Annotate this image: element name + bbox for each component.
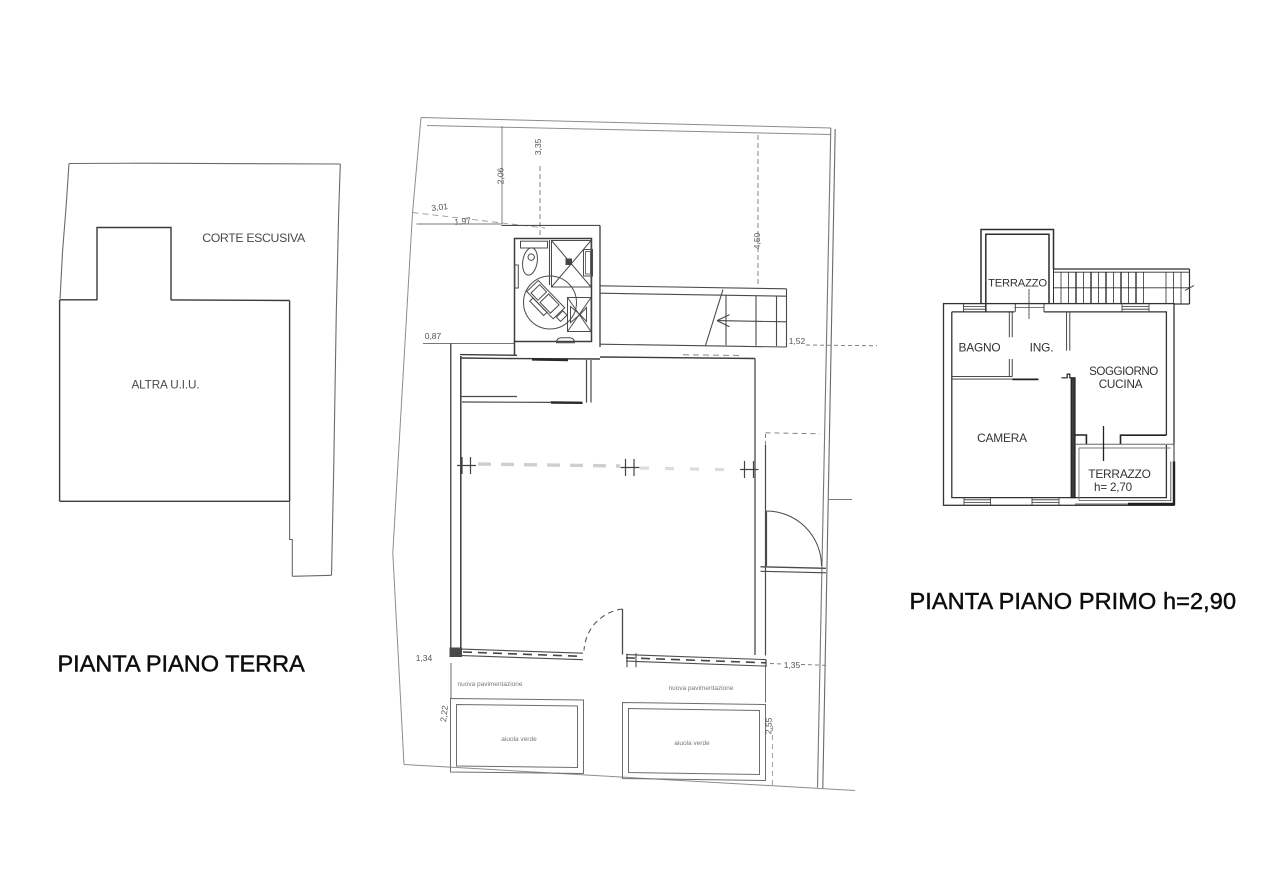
svg-text:3,01: 3,01 xyxy=(431,201,449,213)
svg-text:PIANTA PIANO PRIMO h=2,90: PIANTA PIANO PRIMO h=2,90 xyxy=(910,588,1237,614)
svg-text:ING.: ING. xyxy=(1030,341,1054,355)
svg-text:CUCINA: CUCINA xyxy=(1099,378,1143,391)
svg-text:BAGNO: BAGNO xyxy=(959,341,1001,355)
svg-text:2,06: 2,06 xyxy=(496,167,506,184)
svg-text:2,22: 2,22 xyxy=(438,705,450,723)
svg-text:1,52: 1,52 xyxy=(789,336,806,346)
svg-text:1,34: 1,34 xyxy=(416,653,433,663)
svg-text:CAMERA: CAMERA xyxy=(977,431,1027,445)
svg-text:CORTE ESCUSIVA: CORTE ESCUSIVA xyxy=(202,231,306,245)
svg-text:aiuola verde: aiuola verde xyxy=(501,736,537,743)
svg-text:ALTRA U.I.U.: ALTRA U.I.U. xyxy=(131,379,199,392)
svg-text:SOGGIORNO: SOGGIORNO xyxy=(1089,365,1158,378)
svg-text:3,35: 3,35 xyxy=(533,138,543,155)
svg-text:h= 2,70: h= 2,70 xyxy=(1094,481,1133,494)
svg-text:TERRAZZO: TERRAZZO xyxy=(988,277,1047,289)
svg-text:0,87: 0,87 xyxy=(425,331,442,341)
svg-text:nuova pavimentazione: nuova pavimentazione xyxy=(668,685,733,692)
svg-text:PIANTA PIANO TERRA: PIANTA PIANO TERRA xyxy=(58,651,306,677)
svg-text:1,35: 1,35 xyxy=(784,660,801,670)
svg-text:aiuola verde: aiuola verde xyxy=(674,740,710,747)
svg-text:TERRAZZO: TERRAZZO xyxy=(1088,467,1150,481)
svg-text:2,55: 2,55 xyxy=(763,717,774,734)
svg-text:4,50: 4,50 xyxy=(752,232,762,249)
svg-text:1,97: 1,97 xyxy=(454,215,472,227)
svg-text:nuova pavimentazione: nuova pavimentazione xyxy=(457,681,522,688)
